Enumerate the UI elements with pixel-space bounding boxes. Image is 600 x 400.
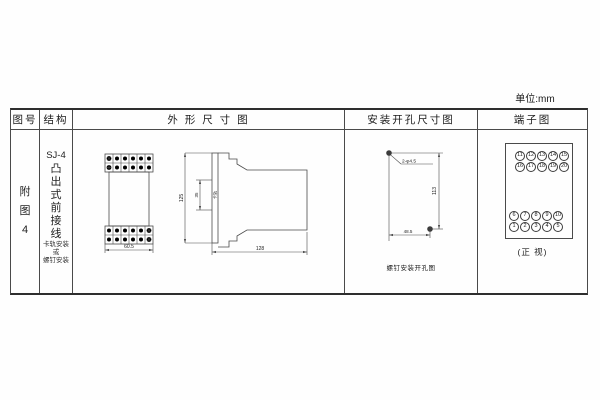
rail-notch-label: 35 [194, 192, 199, 198]
unit-label: 单位:mm [495, 90, 575, 105]
figure-no-cell: 附 图 4 [11, 130, 40, 293]
rail-label: 卡轨 [212, 190, 219, 199]
terminal-circle: 18 [537, 162, 547, 172]
figure-no-char: 4 [22, 225, 28, 236]
mounting-hole-drawing: 2-φ4.5 113 48.5 [375, 145, 455, 245]
front-bottom-terminal-block [105, 226, 153, 244]
mounting-caption: 螺钉安装开孔图 [345, 262, 477, 272]
terminal-caption: (正 视) [478, 246, 587, 258]
side-view-drawing: 125 35 卡轨 128 [176, 148, 316, 260]
mounting-hole-top [387, 151, 392, 156]
front-top-terminal-block [105, 154, 153, 172]
side-depth-dimension: 128 [212, 232, 307, 255]
horizontal-spacing-label: 48.5 [404, 229, 413, 234]
mounting-hole-bottom [428, 227, 433, 232]
structure-cell: SJ-4 凸 出 式 前 接 线 卡轨安装 或 螺钉安装 [40, 130, 73, 293]
structure-type-char: 线 [51, 228, 62, 241]
terminal-circle: 19 [548, 162, 558, 172]
side-depth-label: 128 [256, 246, 265, 252]
vertical-spacing-label: 113 [432, 187, 438, 195]
terminal-diagram-cell: 11 12 13 14 15 16 17 18 19 20 [478, 130, 587, 293]
terminal-circle: 2 [520, 222, 530, 232]
terminal-circle: 8 [531, 211, 541, 221]
horizontal-spacing-dimension: 48.5 [389, 229, 430, 238]
model-label: SJ-4 [46, 150, 66, 161]
hole-size-callout: 2-φ4.5 [391, 155, 434, 165]
terminal-circle: 16 [515, 162, 525, 172]
terminal-circle: 10 [553, 211, 563, 221]
side-height-label: 125 [179, 194, 185, 203]
structure-type-char: 凸 [51, 163, 62, 176]
front-view-drawing: 60.5 [100, 148, 164, 260]
header-outline-dims: 外 形 尺 寸 图 [73, 110, 345, 130]
mounting-hole-cell: 2-φ4.5 113 48.5 螺钉安装开孔图 [345, 130, 478, 293]
structure-type-char: 出 [51, 176, 62, 189]
front-body-outline [109, 172, 149, 226]
terminal-circle: 17 [526, 162, 536, 172]
rail-notch-dimension: 35 卡轨 [194, 180, 219, 210]
mounting-method-line: 螺钉安装 [43, 257, 69, 265]
terminal-row: 6 7 8 9 10 [509, 211, 563, 221]
header-structure: 结构 [40, 110, 73, 130]
figure-no-char: 附 [20, 187, 31, 198]
terminal-circle: 1 [509, 222, 519, 232]
terminal-circle: 3 [531, 222, 541, 232]
structure-type-char: 式 [51, 189, 62, 202]
terminal-circle: 5 [553, 222, 563, 232]
terminal-circle: 12 [526, 151, 536, 161]
terminal-circle: 20 [559, 162, 569, 172]
spec-sheet-page: 单位:mm 图号 结构 外 形 尺 寸 图 安装开孔尺寸图 端子图 附 图 4 … [0, 0, 600, 400]
hole-size-label: 2-φ4.5 [402, 159, 416, 165]
side-body-outline [218, 153, 307, 247]
front-width-label: 60.5 [124, 244, 134, 250]
header-figure-no: 图号 [11, 110, 40, 130]
vertical-spacing-dimension: 113 [432, 153, 443, 229]
outline-drawing-cell: 60.5 125 35 卡轨 [73, 130, 345, 293]
terminal-circle: 6 [509, 211, 519, 221]
header-mounting-hole-dims: 安装开孔尺寸图 [345, 110, 478, 130]
terminal-circle: 14 [548, 151, 558, 161]
terminal-circle: 9 [542, 211, 552, 221]
mounting-method-line: 或 [53, 249, 60, 257]
terminal-row: 1 2 3 4 5 [509, 222, 563, 232]
terminal-group-top: 11 12 13 14 15 16 17 18 19 20 [515, 151, 569, 172]
mounting-method-line: 卡轨安装 [43, 241, 69, 249]
terminal-circle: 13 [537, 151, 547, 161]
terminal-circle: 15 [559, 151, 569, 161]
structure-type-char: 前 [51, 202, 62, 215]
terminal-box: 11 12 13 14 15 16 17 18 19 20 [505, 143, 573, 239]
terminal-circle: 4 [542, 222, 552, 232]
terminal-row: 16 17 18 19 20 [515, 162, 569, 172]
structure-type-char: 接 [51, 215, 62, 228]
figure-no-char: 图 [20, 206, 31, 217]
header-terminal-diagram: 端子图 [478, 110, 587, 130]
terminal-row: 11 12 13 14 15 [515, 151, 569, 161]
spec-table: 图号 结构 外 形 尺 寸 图 安装开孔尺寸图 端子图 附 图 4 SJ-4 凸… [10, 108, 588, 295]
terminal-group-bottom: 6 7 8 9 10 1 2 3 4 5 [509, 211, 563, 232]
terminal-circle: 7 [520, 211, 530, 221]
terminal-circle: 11 [515, 151, 525, 161]
front-width-dimension: 60.5 [105, 244, 153, 253]
